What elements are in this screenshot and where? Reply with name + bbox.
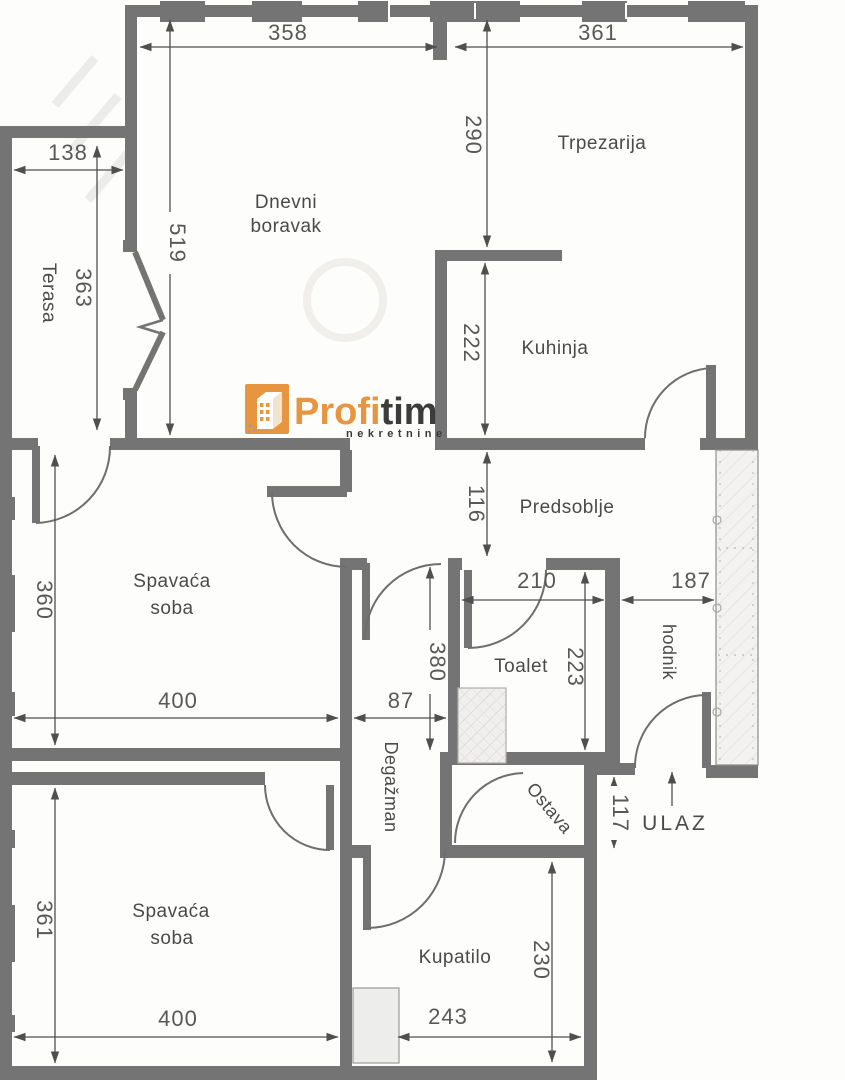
dim-toalet-h: 223 [563,647,588,687]
bedroom2-door-leaf [326,785,334,850]
room-label-dnevni-2: boravak [250,216,321,237]
dim-terasa-w: 138 [48,140,88,165]
predsoblje-door-arc [272,492,347,567]
wall-hodnik-bottom [597,763,635,775]
wall-kitchen-top-stub [447,250,562,261]
toalet-fixture [458,688,506,763]
wall-bedroom2-top [0,772,265,785]
room-label-spavaca2-1: Spavaća [132,901,209,922]
wall-predsoblje-stub [267,486,347,497]
entrance-door-leaf [702,692,711,768]
room-label-spavaca1-2: soba [150,598,193,619]
wall-right-cap-bottom [706,765,758,778]
bedroom2-door-arc [265,785,330,850]
dim-terasa-h: 363 [71,268,96,308]
wall-right-outer-upper [745,5,758,438]
dim-toalet-w: 210 [517,568,557,593]
dim-bedroom1-w: 400 [158,688,198,713]
dim-bedroom2-w: 400 [158,1006,198,1031]
wall-top-left-step [125,5,137,138]
wall-spine-lower [340,558,352,1068]
dim-bedroom1-h: 360 [32,580,57,620]
logo-subtitle: nekretnine [346,428,447,440]
room-label-kuhinja: Kuhinja [522,338,589,359]
room-label-toalet: Toalet [494,656,548,677]
logo: Profitim nekretnine [245,384,447,440]
glass-strip [713,450,758,765]
room-label-dnevni-1: Dnevni [255,192,317,213]
wall-terasa-right-upper [125,138,137,240]
room-label-spavaca2-2: soba [150,928,193,949]
room-label-ostava: Ostava [523,779,577,838]
wall-top-stub-living-trpezarija [433,5,447,60]
dim-trpezarija-h: 290 [461,115,486,155]
wall-spine-upper [340,450,352,492]
logo-text: Profitim [294,391,438,433]
terasa-door-jamb-top [123,240,137,252]
room-label-trpezarija: Trpezarija [558,133,647,154]
wall-kitchen-bottom [435,438,645,450]
dim-kupatilo-w: 243 [428,1004,468,1029]
ostava-door-arc [455,773,523,843]
kitchen-door-arc [645,368,712,438]
room-label-degazman: Degažman [381,741,401,832]
wall-right-lower [584,763,597,1080]
floor-plan-page: 358 361 519 290 138 363 222 116 210 187 … [0,0,845,1080]
dim-top-left: 358 [268,20,308,45]
floor-plan-drawing: 358 361 519 290 138 363 222 116 210 187 … [0,0,845,1080]
dim-bedroom2-h: 361 [32,900,57,940]
dim-ulaz-gap: 117 [608,794,633,832]
dim-degazman-h: 380 [425,642,450,682]
dim-predsoblje-h: 116 [464,485,489,523]
kupatilo-fixture [353,988,399,1063]
entrance-door-arc [635,695,706,768]
kupatilo-door-leaf [363,845,371,930]
room-label-terasa: Terasa [38,263,59,323]
room-label-spavaca1-1: Spavaća [133,571,210,592]
walls [0,1,758,1080]
wall-bedroom1-bottom [0,748,352,761]
wall-toalet-right [605,558,620,765]
room-label-predsoblje: Predsoblje [520,497,615,518]
toalet-door-leaf [464,570,472,648]
dimension-lines [14,20,743,1063]
wall-bedroom1-top-right [110,438,350,450]
background-watermark [55,58,383,338]
dim-top-right: 361 [578,20,618,45]
room-label-ulaz: ULAZ [642,812,708,835]
wall-bottom [0,1066,597,1080]
room-label-kupatilo: Kupatilo [419,947,492,968]
wall-terasa-top [0,126,137,138]
dim-living-h: 519 [165,223,190,263]
bedroom1-door-leaf [32,446,40,523]
dim-kupatilo-h: 230 [529,940,554,980]
dim-degazman-w: 87 [388,688,414,713]
bedroom1-door-arc [36,446,110,523]
wall-ostava-left [440,752,452,858]
kupatilo-door-arc [367,850,445,928]
wall-toalet-top-left [448,558,462,570]
dim-hodnik-w: 187 [671,568,711,593]
room-label-hodnik: hodnik [659,624,679,681]
kitchen-door-leaf [706,365,716,440]
wall-kupatilo-top-right [443,845,595,858]
dim-kuhinja-h: 222 [459,323,484,363]
